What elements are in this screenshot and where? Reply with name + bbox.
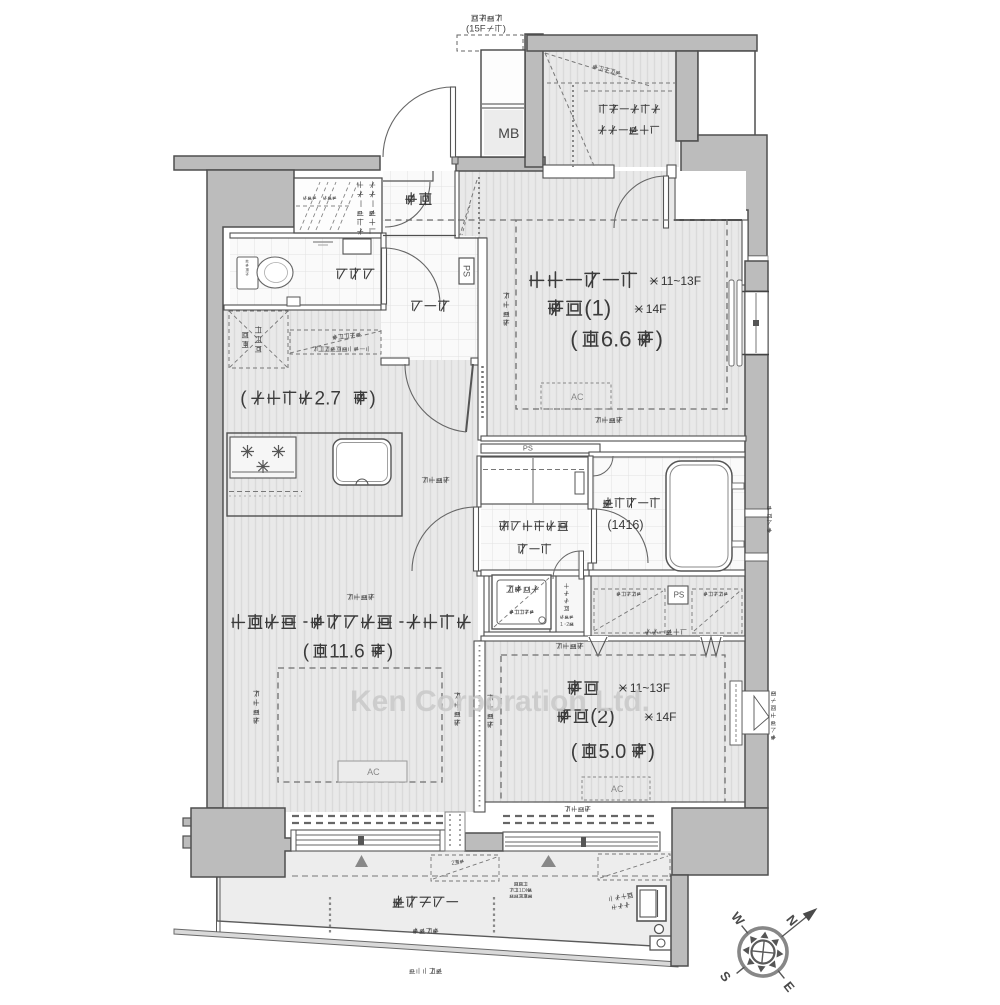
svg-text:14F: 14F <box>646 302 667 316</box>
svg-text:PS: PS <box>674 591 685 600</box>
svg-text:PS: PS <box>523 444 533 453</box>
svg-text:11~13F: 11~13F <box>661 274 701 288</box>
svg-text:(15F: (15F <box>466 24 486 35</box>
svg-text:): ) <box>503 24 506 35</box>
svg-text:(: ( <box>571 741 578 763</box>
svg-text:Ken Corporation Ltd.: Ken Corporation Ltd. <box>350 685 650 718</box>
svg-text:1: 1 <box>560 622 563 628</box>
svg-text:PS: PS <box>462 265 472 277</box>
svg-text:): ) <box>369 389 375 410</box>
svg-text:MB: MB <box>498 125 519 141</box>
svg-text:6.6: 6.6 <box>601 327 632 352</box>
svg-text:(1416): (1416) <box>607 518 643 532</box>
svg-text:(1): (1) <box>584 296 611 321</box>
svg-text:2: 2 <box>566 622 569 628</box>
svg-text:(: ( <box>303 642 310 663</box>
svg-text:): ) <box>387 642 393 663</box>
svg-text:14F: 14F <box>656 710 677 724</box>
svg-text:AC: AC <box>367 767 380 777</box>
svg-text:2.7: 2.7 <box>315 389 341 410</box>
svg-text:): ) <box>648 741 655 763</box>
svg-text:(: ( <box>240 389 247 410</box>
svg-text:AC: AC <box>611 784 624 794</box>
svg-text:11.6: 11.6 <box>329 642 365 663</box>
svg-text:): ) <box>656 327 663 352</box>
svg-text:5.0: 5.0 <box>599 741 627 763</box>
svg-text:1DK: 1DK <box>519 888 530 894</box>
svg-text:AC: AC <box>571 392 584 402</box>
svg-text:(: ( <box>570 327 578 352</box>
